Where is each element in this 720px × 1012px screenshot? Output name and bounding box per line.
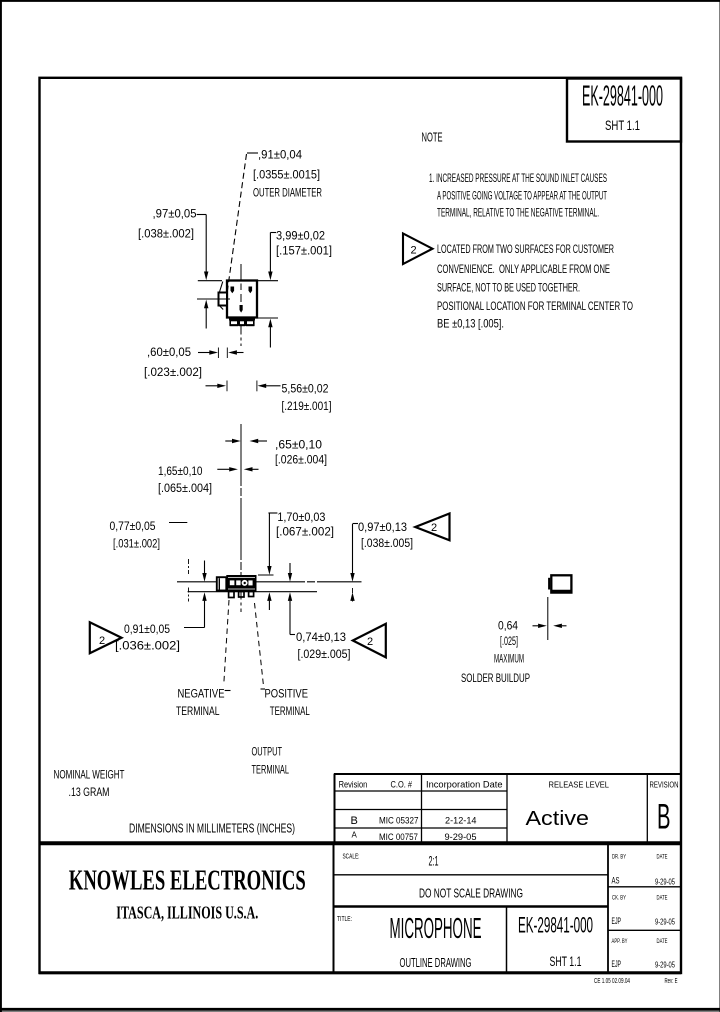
svg-text:0,64: 0,64 <box>498 621 519 633</box>
svg-text:B: B <box>657 798 671 837</box>
svg-text:MIC 05327: MIC 05327 <box>379 816 419 827</box>
svg-text:DATE: DATE <box>657 895 668 902</box>
svg-text:[.065±.004]: [.065±.004] <box>158 483 212 495</box>
svg-text:[.025]: [.025] <box>500 636 518 648</box>
svg-text:9-29-05: 9-29-05 <box>655 878 675 887</box>
svg-text:POSITIONAL LOCATION FOR TERMIN: POSITIONAL LOCATION FOR TERMINAL CENTER … <box>437 299 633 313</box>
svg-text:Active: Active <box>526 807 590 830</box>
svg-text:,97±0,05: ,97±0,05 <box>153 209 197 221</box>
svg-text:[.0355±.0015]: [.0355±.0015] <box>253 170 320 182</box>
svg-text:RELEASE LEVEL: RELEASE LEVEL <box>549 780 610 790</box>
svg-text:[.219±.001]: [.219±.001] <box>282 401 332 413</box>
svg-text:C.O. #: C.O. # <box>391 780 413 790</box>
svg-text:Rev: E: Rev: E <box>665 976 678 985</box>
svg-text:2: 2 <box>99 635 105 647</box>
svg-text:ITASCA, ILLINOIS U.S.A.: ITASCA, ILLINOIS U.S.A. <box>116 903 258 923</box>
svg-text:SHT 1.1: SHT 1.1 <box>605 117 640 133</box>
svg-text:2-12-14: 2-12-14 <box>445 816 477 827</box>
svg-text:5,56±0,02: 5,56±0,02 <box>282 384 329 396</box>
svg-text:EJP: EJP <box>612 916 622 926</box>
svg-text:REVISION: REVISION <box>650 781 679 790</box>
svg-text:TERMINAL: TERMINAL <box>270 706 310 718</box>
svg-text:Incorporation Date: Incorporation Date <box>426 780 503 790</box>
svg-text:POSITIVE: POSITIVE <box>265 689 309 701</box>
svg-text:.13 GRAM: .13 GRAM <box>69 787 110 799</box>
svg-text:[.038±.005]: [.038±.005] <box>361 538 413 550</box>
svg-text:Revision: Revision <box>339 780 368 790</box>
svg-text:,91±0,04: ,91±0,04 <box>258 150 303 162</box>
svg-text:2:1: 2:1 <box>429 854 439 869</box>
svg-text:TERMINAL: TERMINAL <box>252 765 290 777</box>
svg-text:[.038±.002]: [.038±.002] <box>138 229 194 241</box>
svg-text:0,97±0,13: 0,97±0,13 <box>358 522 407 534</box>
svg-text:B: B <box>351 815 358 827</box>
svg-text:9-29-05: 9-29-05 <box>655 961 675 970</box>
svg-text:SURFACE, NOT TO BE USED TOGETH: SURFACE, NOT TO BE USED TOGETHER. <box>437 281 580 295</box>
svg-text:CE 1.05 02.09.04: CE 1.05 02.09.04 <box>594 978 630 985</box>
svg-text:SCALE:: SCALE: <box>343 854 360 861</box>
svg-text:CONVENIENCE. ONLY APPLICABLE: CONVENIENCE. ONLY APPLICABLE FROM ONE <box>437 262 610 276</box>
svg-text:0,91±0,05: 0,91±0,05 <box>124 624 170 636</box>
svg-text:EJP: EJP <box>612 959 622 969</box>
svg-text:,65±0,10: ,65±0,10 <box>275 440 322 452</box>
svg-text:DATE: DATE <box>657 854 668 861</box>
svg-text:SOLDER BUILDUP: SOLDER BUILDUP <box>461 673 530 685</box>
svg-text:NEGATIVE: NEGATIVE <box>178 689 225 701</box>
svg-text:OUTLINE DRAWING: OUTLINE DRAWING <box>400 955 472 970</box>
svg-text:MAXIMUM: MAXIMUM <box>494 654 524 666</box>
svg-text:EK-29841-000: EK-29841-000 <box>518 913 593 938</box>
svg-text:NOTE: NOTE <box>422 131 443 145</box>
svg-text:[.029±.005]: [.029±.005] <box>298 649 351 661</box>
svg-text:1,65±0,10: 1,65±0,10 <box>158 466 203 478</box>
svg-text:CK. BY: CK. BY <box>612 895 626 902</box>
svg-text:2: 2 <box>431 522 437 534</box>
svg-text:[.023±.002]: [.023±.002] <box>144 367 202 379</box>
svg-text:1. INCREASED PRESSURE AT THE S: 1. INCREASED PRESSURE AT THE SOUND INLET… <box>429 171 607 185</box>
svg-text:,60±0,05: ,60±0,05 <box>147 347 191 359</box>
svg-text:NOMINAL WEIGHT: NOMINAL WEIGHT <box>54 770 125 782</box>
svg-text:TERMINAL: TERMINAL <box>176 706 220 718</box>
svg-text:TERMINAL, RELATIVE TO THE NEGA: TERMINAL, RELATIVE TO THE NEGATIVE TERMI… <box>437 206 599 220</box>
svg-text:EK-29841-000: EK-29841-000 <box>582 81 663 113</box>
svg-text:DR. BY: DR. BY <box>612 854 626 861</box>
svg-text:9-29-05: 9-29-05 <box>655 918 675 927</box>
svg-text:[.067±.002]: [.067±.002] <box>276 527 334 539</box>
svg-text:BE ±0,13 [.005].: BE ±0,13 [.005]. <box>437 317 504 331</box>
svg-text:DO NOT SCALE DRAWING: DO NOT SCALE DRAWING <box>419 887 523 901</box>
svg-text:[.031±.002]: [.031±.002] <box>113 539 160 551</box>
svg-text:[.157±.001]: [.157±.001] <box>276 246 332 258</box>
svg-text:SHT 1.1: SHT 1.1 <box>550 954 582 969</box>
svg-text:2: 2 <box>411 245 417 257</box>
svg-text:0,77±0,05: 0,77±0,05 <box>110 521 156 533</box>
svg-text:APP. BY: APP. BY <box>612 938 628 945</box>
svg-text:A: A <box>352 831 358 840</box>
svg-text:TITLE:: TITLE: <box>337 916 352 923</box>
svg-text:[.036±.002]: [.036±.002] <box>115 641 180 653</box>
svg-text:LOCATED FROM TWO SURFACES FOR: LOCATED FROM TWO SURFACES FOR CUSTOMER <box>437 242 614 256</box>
svg-text:MICROPHONE: MICROPHONE <box>390 913 482 945</box>
svg-text:1,70±0,03: 1,70±0,03 <box>277 512 325 524</box>
svg-text:AS: AS <box>612 876 620 886</box>
svg-text:DATE: DATE <box>657 938 668 945</box>
svg-text:0,74±0,13: 0,74±0,13 <box>296 632 346 644</box>
svg-text:A POSITIVE GOING VOLTAGE TO AP: A POSITIVE GOING VOLTAGE TO APPEAR AT TH… <box>437 189 607 203</box>
svg-text:OUTER DIAMETER: OUTER DIAMETER <box>253 188 322 200</box>
svg-text:[.026±.004]: [.026±.004] <box>275 455 327 467</box>
svg-text:2: 2 <box>367 636 373 648</box>
svg-text:DIMENSIONS IN MILLIMETERS (INC: DIMENSIONS IN MILLIMETERS (INCHES) <box>129 822 295 836</box>
svg-text:3,99±0,02: 3,99±0,02 <box>276 231 325 243</box>
svg-text:OUTPUT: OUTPUT <box>252 747 283 759</box>
svg-text:KNOWLES ELECTRONICS: KNOWLES ELECTRONICS <box>69 865 306 897</box>
